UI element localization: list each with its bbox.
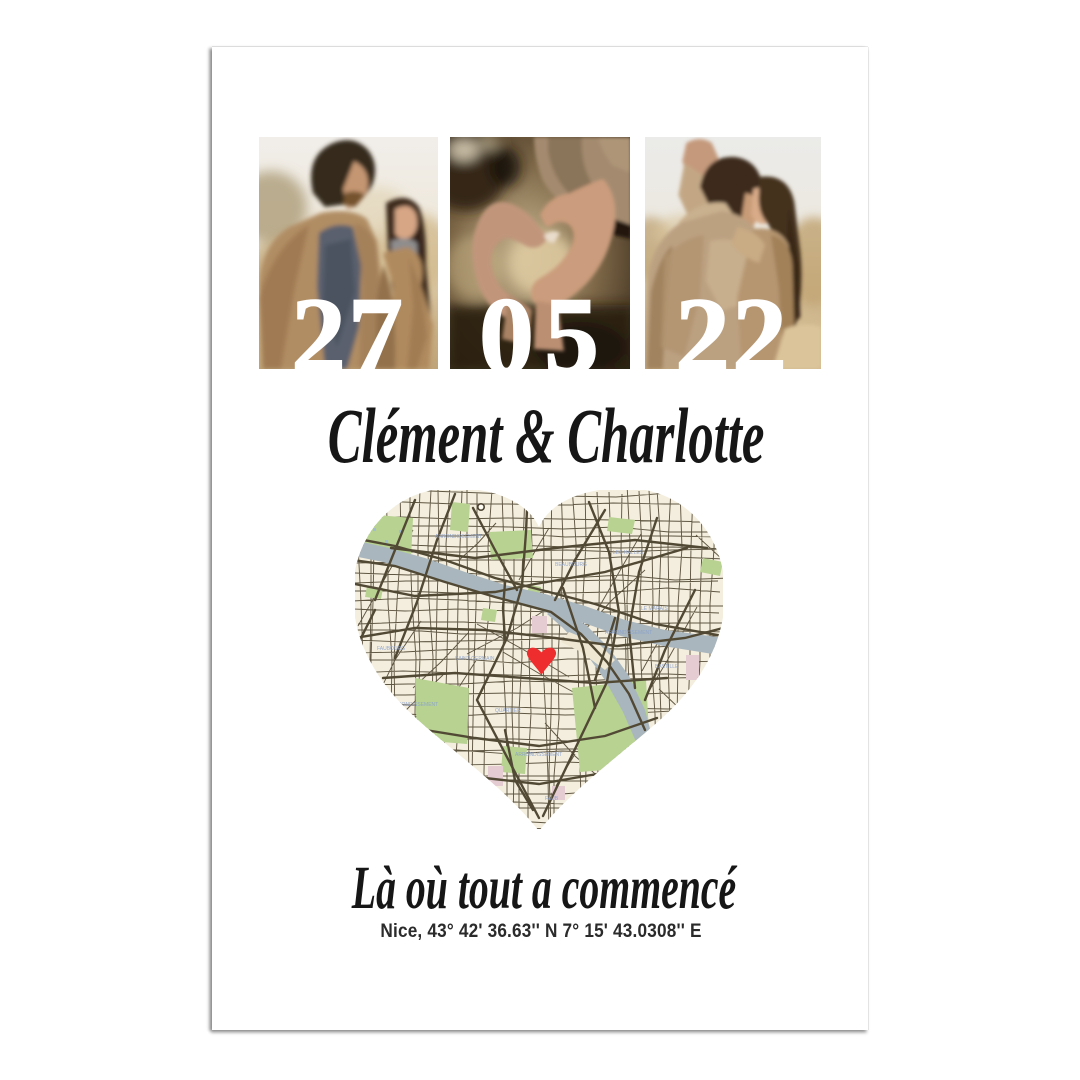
svg-text:FAUBOURG: FAUBOURG — [377, 646, 405, 652]
svg-text:ARRONDISSEMENT: ARRONDISSEMENT — [391, 702, 438, 708]
svg-text:LE MARAIS: LE MARAIS — [641, 606, 668, 612]
svg-text:FAUB: FAUB — [545, 796, 559, 802]
svg-text:BASTILLE: BASTILLE — [655, 664, 679, 670]
svg-text:LES HALLES: LES HALLES — [613, 550, 644, 556]
svg-text:ARRONDISSEMENT: ARRONDISSEMENT — [605, 630, 652, 636]
svg-text:ARRONDISSEMENT: ARRONDISSEMENT — [515, 752, 562, 758]
svg-text:SAINT-GERMAIN: SAINT-GERMAIN — [455, 656, 495, 662]
svg-text:BEAUBOURG: BEAUBOURG — [555, 562, 587, 568]
svg-text:ARRONDISSEMENT: ARRONDISSEMENT — [435, 534, 482, 540]
svg-text:QUARTIER: QUARTIER — [495, 708, 521, 714]
